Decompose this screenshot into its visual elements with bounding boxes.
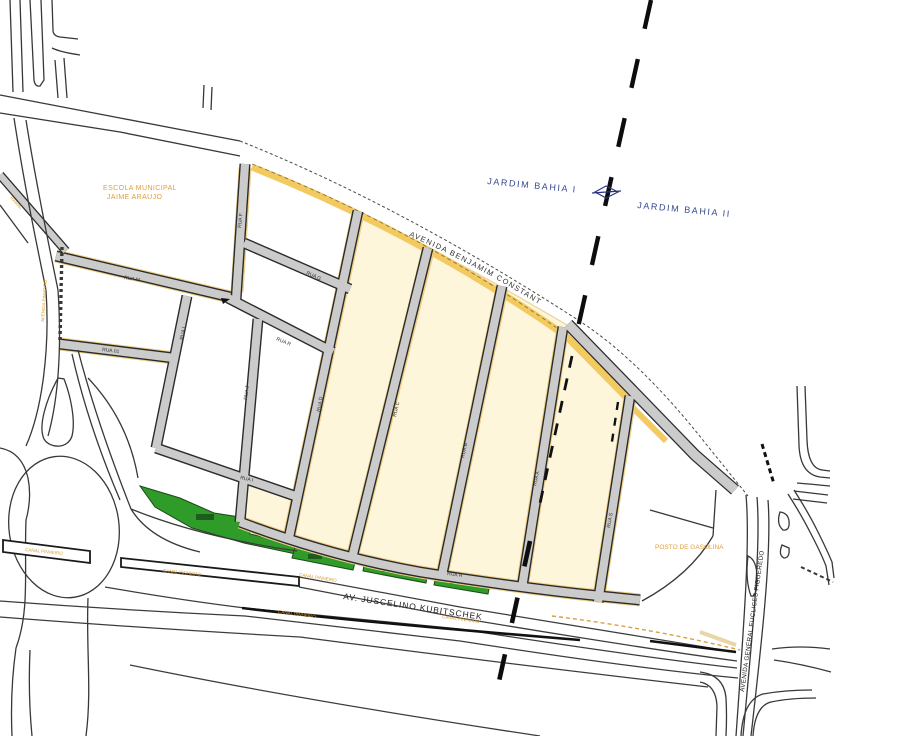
svg-text:POSTO DE GASOLINA: POSTO DE GASOLINA: [655, 544, 724, 551]
svg-text:ESCOLA MUNICIPAL: ESCOLA MUNICIPAL: [103, 185, 177, 192]
svg-text:JAIME ARAUJO: JAIME ARAUJO: [107, 194, 163, 201]
